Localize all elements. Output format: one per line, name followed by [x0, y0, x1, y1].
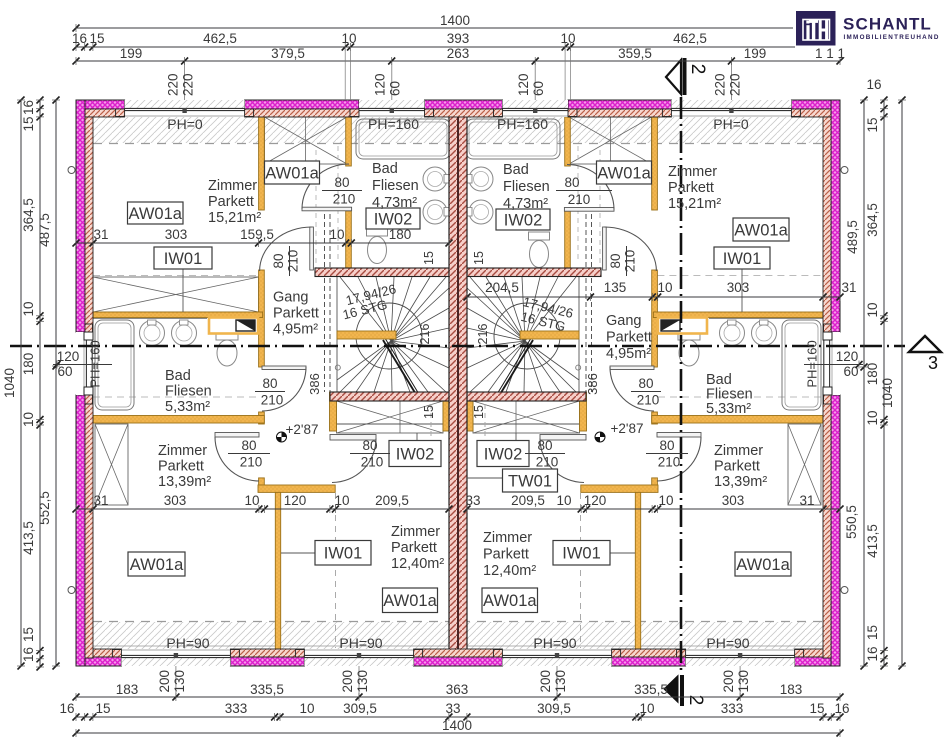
- svg-text:SCHANTL: SCHANTL: [843, 15, 932, 34]
- svg-text:552,5: 552,5: [37, 491, 52, 525]
- svg-text:80: 80: [271, 253, 286, 268]
- svg-text:413,5: 413,5: [865, 524, 880, 558]
- svg-text:5,33m²: 5,33m²: [165, 399, 210, 415]
- svg-text:200: 200: [538, 670, 553, 693]
- svg-text:31: 31: [93, 227, 108, 242]
- svg-text:10: 10: [329, 227, 344, 242]
- svg-text:210: 210: [658, 455, 681, 470]
- svg-text:60: 60: [388, 81, 403, 96]
- svg-text:PH=90: PH=90: [533, 635, 576, 651]
- svg-text:216: 216: [476, 324, 490, 345]
- svg-text:15: 15: [422, 405, 436, 419]
- svg-text:Bad: Bad: [503, 162, 529, 178]
- svg-text:216: 216: [418, 324, 432, 345]
- svg-text:209,5: 209,5: [511, 493, 545, 508]
- svg-text:130: 130: [172, 670, 187, 693]
- svg-text:15: 15: [809, 701, 824, 716]
- svg-text:AW01a: AW01a: [383, 592, 437, 610]
- svg-text:199: 199: [120, 46, 143, 61]
- svg-text:10: 10: [865, 410, 880, 425]
- svg-text:120: 120: [584, 493, 607, 508]
- svg-text:15,21m²: 15,21m²: [668, 196, 721, 212]
- svg-text:PH=160: PH=160: [368, 116, 419, 132]
- svg-text:Zimmer: Zimmer: [208, 178, 257, 194]
- svg-text:4,95m²: 4,95m²: [273, 322, 318, 338]
- svg-text:210: 210: [261, 393, 284, 408]
- svg-text:31: 31: [841, 280, 856, 295]
- svg-text:Zimmer: Zimmer: [158, 443, 207, 459]
- svg-text:AW01a: AW01a: [130, 556, 184, 574]
- svg-text:13,39m²: 13,39m²: [158, 474, 211, 490]
- svg-text:PH=160: PH=160: [805, 340, 820, 387]
- svg-text:Gang: Gang: [606, 313, 641, 329]
- svg-text:PH=0: PH=0: [713, 116, 749, 132]
- svg-text:16: 16: [866, 77, 881, 92]
- svg-text:Parkett: Parkett: [606, 330, 652, 346]
- svg-text:130: 130: [355, 670, 370, 693]
- svg-text:210: 210: [240, 455, 263, 470]
- svg-text:33: 33: [445, 701, 460, 716]
- svg-text:TW01: TW01: [508, 472, 552, 490]
- svg-text:220: 220: [166, 73, 181, 96]
- svg-text:15: 15: [422, 251, 436, 265]
- svg-text:80: 80: [659, 438, 674, 453]
- svg-text:33: 33: [465, 493, 480, 508]
- svg-text:220: 220: [712, 73, 727, 96]
- svg-text:PH=160: PH=160: [497, 116, 548, 132]
- svg-text:4,95m²: 4,95m²: [606, 346, 651, 362]
- svg-text:15: 15: [89, 31, 104, 46]
- svg-text:Parkett: Parkett: [391, 540, 437, 556]
- svg-text:363: 363: [446, 682, 469, 697]
- svg-text:335,5: 335,5: [634, 682, 668, 697]
- svg-text:16: 16: [834, 701, 849, 716]
- svg-text:210: 210: [361, 455, 384, 470]
- svg-text:210: 210: [623, 250, 638, 273]
- svg-text:80: 80: [362, 438, 377, 453]
- svg-text:489,5: 489,5: [845, 220, 860, 254]
- svg-text:359,5: 359,5: [618, 46, 652, 61]
- svg-text:10: 10: [556, 493, 571, 508]
- svg-text:+2'87: +2'87: [286, 422, 319, 437]
- svg-text:210: 210: [286, 250, 301, 273]
- svg-text:80: 80: [638, 376, 653, 391]
- svg-text:335,5: 335,5: [250, 682, 284, 697]
- svg-text:AW01a: AW01a: [128, 205, 182, 223]
- svg-text:AW01a: AW01a: [483, 592, 537, 610]
- svg-text:180: 180: [865, 363, 880, 386]
- svg-text:303: 303: [722, 493, 745, 508]
- svg-text:13,39m²: 13,39m²: [714, 474, 767, 490]
- svg-text:200: 200: [157, 670, 172, 693]
- svg-text:80: 80: [564, 175, 579, 190]
- svg-text:10: 10: [341, 31, 356, 46]
- svg-text:80: 80: [262, 376, 277, 391]
- svg-text:15: 15: [472, 251, 486, 265]
- svg-text:10: 10: [21, 301, 36, 316]
- svg-text:303: 303: [165, 227, 188, 242]
- svg-text:333: 333: [225, 701, 248, 716]
- svg-text:+2'87: +2'87: [611, 421, 644, 436]
- svg-text:PH=90: PH=90: [339, 635, 382, 651]
- svg-text:15: 15: [21, 627, 36, 642]
- svg-text:IMMOBILIENTREUHAND: IMMOBILIENTREUHAND: [844, 34, 940, 41]
- svg-text:120: 120: [284, 493, 307, 508]
- svg-text:10: 10: [299, 701, 314, 716]
- svg-text:AW01a: AW01a: [734, 221, 788, 239]
- svg-text:15: 15: [865, 117, 880, 132]
- svg-text:15: 15: [472, 405, 486, 419]
- svg-text:Parkett: Parkett: [273, 306, 319, 322]
- svg-text:IW01: IW01: [164, 250, 203, 268]
- svg-text:16: 16: [21, 647, 36, 662]
- svg-text:15: 15: [21, 116, 36, 131]
- svg-text:80: 80: [241, 438, 256, 453]
- svg-text:183: 183: [116, 682, 139, 697]
- svg-text:3: 3: [928, 353, 938, 373]
- svg-text:80: 80: [537, 438, 552, 453]
- svg-text:120: 120: [373, 73, 388, 96]
- svg-text:5,33m²: 5,33m²: [706, 401, 751, 417]
- svg-text:4,73m²: 4,73m²: [372, 195, 417, 211]
- svg-text:2: 2: [685, 695, 706, 706]
- svg-text:Parkett: Parkett: [714, 459, 760, 475]
- svg-text:309,5: 309,5: [537, 701, 571, 716]
- svg-text:210: 210: [536, 455, 559, 470]
- svg-text:Fliesen: Fliesen: [372, 178, 419, 194]
- svg-text:IW02: IW02: [396, 445, 435, 463]
- svg-text:2: 2: [687, 64, 708, 75]
- svg-text:130: 130: [553, 670, 568, 693]
- svg-text:IW01: IW01: [562, 545, 601, 563]
- svg-text:IW02: IW02: [504, 211, 543, 229]
- svg-text:IW01: IW01: [324, 545, 363, 563]
- svg-text:220: 220: [727, 73, 742, 96]
- svg-text:210: 210: [568, 192, 591, 207]
- svg-text:130: 130: [736, 670, 751, 693]
- svg-text:550,5: 550,5: [844, 505, 859, 539]
- svg-text:Bad: Bad: [165, 368, 191, 384]
- svg-text:AW01a: AW01a: [736, 556, 790, 574]
- svg-text:4,73m²: 4,73m²: [503, 196, 548, 212]
- svg-text:12,40m²: 12,40m²: [391, 556, 444, 572]
- svg-text:Zimmer: Zimmer: [714, 443, 763, 459]
- svg-text:16: 16: [21, 100, 36, 115]
- svg-text:Parkett: Parkett: [158, 459, 204, 475]
- svg-text:393: 393: [447, 31, 470, 46]
- svg-text:379,5: 379,5: [271, 46, 305, 61]
- svg-text:159,5: 159,5: [240, 227, 274, 242]
- svg-text:1040: 1040: [880, 378, 895, 408]
- svg-text:462,5: 462,5: [673, 31, 707, 46]
- svg-text:16: 16: [72, 31, 87, 46]
- svg-text:120: 120: [516, 73, 531, 96]
- svg-text:1400: 1400: [442, 718, 472, 733]
- svg-text:183: 183: [780, 682, 803, 697]
- svg-text:PH=90: PH=90: [706, 635, 749, 651]
- svg-text:200: 200: [340, 670, 355, 693]
- svg-text:180: 180: [21, 353, 36, 376]
- svg-text:Zimmer: Zimmer: [391, 524, 440, 540]
- svg-text:1 1 1: 1 1 1: [815, 46, 845, 61]
- svg-text:210: 210: [637, 393, 660, 408]
- svg-text:10: 10: [21, 412, 36, 427]
- svg-text:10: 10: [244, 493, 259, 508]
- svg-text:204,5: 204,5: [485, 280, 519, 295]
- svg-text:462,5: 462,5: [203, 31, 237, 46]
- svg-text:Zimmer: Zimmer: [483, 530, 532, 546]
- svg-text:386: 386: [585, 373, 600, 395]
- svg-text:180: 180: [389, 227, 412, 242]
- svg-text:10: 10: [334, 493, 349, 508]
- svg-text:199: 199: [744, 46, 767, 61]
- svg-text:15: 15: [95, 701, 110, 716]
- svg-text:333: 333: [721, 701, 744, 716]
- svg-text:10: 10: [865, 302, 880, 317]
- svg-text:16: 16: [865, 646, 880, 661]
- svg-text:220: 220: [181, 73, 196, 96]
- svg-text:IW02: IW02: [374, 210, 413, 228]
- svg-text:10: 10: [560, 31, 575, 46]
- svg-text:303: 303: [164, 493, 187, 508]
- svg-text:1040: 1040: [2, 368, 17, 398]
- svg-text:364,5: 364,5: [21, 198, 36, 232]
- svg-text:386: 386: [307, 373, 322, 395]
- svg-text:Bad: Bad: [372, 161, 398, 177]
- svg-text:413,5: 413,5: [21, 521, 36, 555]
- svg-text:Parkett: Parkett: [208, 194, 254, 210]
- svg-text:15,21m²: 15,21m²: [208, 210, 261, 226]
- svg-text:15: 15: [865, 625, 880, 640]
- svg-text:31: 31: [93, 493, 108, 508]
- svg-text:263: 263: [447, 46, 470, 61]
- svg-text:120: 120: [836, 349, 859, 364]
- svg-text:Gang: Gang: [273, 290, 308, 306]
- svg-text:16: 16: [59, 701, 74, 716]
- svg-text:135: 135: [604, 280, 627, 295]
- svg-text:Fliesen: Fliesen: [165, 384, 212, 400]
- svg-text:80: 80: [334, 175, 349, 190]
- svg-text:12,40m²: 12,40m²: [483, 563, 536, 579]
- svg-text:303: 303: [727, 280, 750, 295]
- svg-text:209,5: 209,5: [375, 493, 409, 508]
- svg-text:10: 10: [657, 280, 672, 295]
- svg-text:AW01a: AW01a: [597, 164, 651, 182]
- svg-text:10: 10: [658, 493, 673, 508]
- svg-text:309,5: 309,5: [343, 701, 377, 716]
- svg-text:IW02: IW02: [484, 445, 523, 463]
- svg-text:200: 200: [721, 670, 736, 693]
- svg-text:Fliesen: Fliesen: [503, 179, 550, 195]
- svg-text:60: 60: [57, 364, 72, 379]
- svg-text:Zimmer: Zimmer: [668, 164, 717, 180]
- svg-text:PH=160: PH=160: [88, 340, 103, 387]
- svg-text:60: 60: [531, 81, 546, 96]
- svg-text:Parkett: Parkett: [668, 180, 714, 196]
- svg-text:31: 31: [799, 493, 814, 508]
- svg-text:364,5: 364,5: [865, 203, 880, 237]
- svg-text:PH=0: PH=0: [167, 116, 203, 132]
- svg-text:Parkett: Parkett: [483, 547, 529, 563]
- svg-text:IW01: IW01: [723, 250, 762, 268]
- svg-text:210: 210: [333, 192, 356, 207]
- svg-text:487,5: 487,5: [37, 213, 52, 247]
- svg-text:80: 80: [608, 253, 623, 268]
- svg-text:1400: 1400: [440, 13, 470, 28]
- svg-text:10: 10: [639, 701, 654, 716]
- svg-text:AW01a: AW01a: [265, 164, 319, 182]
- svg-text:PH=90: PH=90: [166, 635, 209, 651]
